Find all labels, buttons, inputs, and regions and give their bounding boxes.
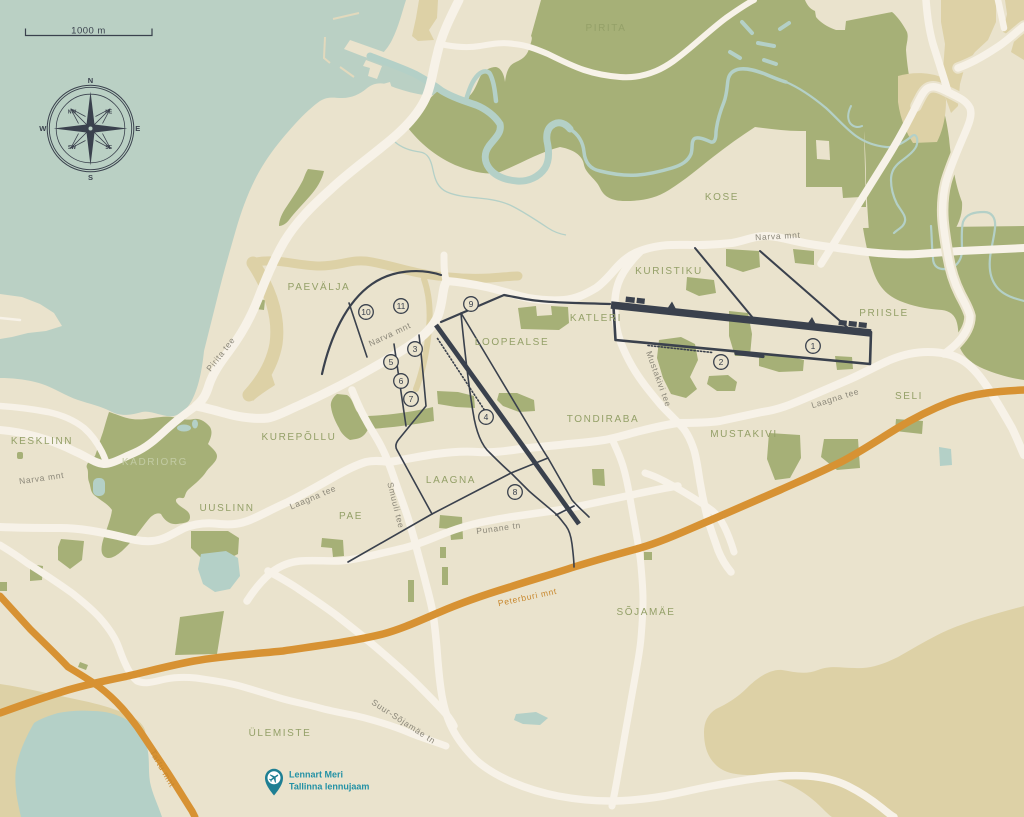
svg-text:NW: NW bbox=[68, 109, 77, 115]
svg-text:E: E bbox=[135, 124, 140, 133]
svg-text:KESKLINN: KESKLINN bbox=[11, 436, 73, 447]
svg-text:1: 1 bbox=[811, 341, 816, 351]
svg-text:KOSE: KOSE bbox=[705, 192, 739, 203]
svg-text:6: 6 bbox=[399, 376, 404, 386]
svg-text:PAEVÄLJA: PAEVÄLJA bbox=[288, 281, 351, 293]
svg-text:2: 2 bbox=[719, 357, 724, 367]
svg-text:PIRITA: PIRITA bbox=[585, 23, 626, 34]
svg-text:SE: SE bbox=[105, 145, 112, 151]
svg-text:N: N bbox=[88, 76, 93, 85]
svg-text:3: 3 bbox=[413, 344, 418, 354]
svg-text:NE: NE bbox=[105, 109, 113, 115]
svg-text:S: S bbox=[88, 173, 93, 182]
svg-text:LAAGNA: LAAGNA bbox=[426, 475, 476, 486]
svg-text:1000 m: 1000 m bbox=[71, 26, 106, 37]
svg-text:W: W bbox=[39, 124, 47, 133]
svg-text:PAE: PAE bbox=[339, 511, 363, 522]
svg-text:11: 11 bbox=[397, 301, 406, 311]
svg-text:5: 5 bbox=[389, 357, 394, 367]
svg-text:KURISTIKU: KURISTIKU bbox=[635, 266, 703, 277]
svg-text:SÕJAMÄE: SÕJAMÄE bbox=[617, 605, 676, 618]
svg-text:10: 10 bbox=[361, 307, 371, 317]
svg-text:PRIISLE: PRIISLE bbox=[859, 308, 909, 319]
svg-text:LOOPEALSE: LOOPEALSE bbox=[475, 337, 549, 348]
svg-text:KATLERI: KATLERI bbox=[570, 313, 622, 324]
svg-text:SW: SW bbox=[68, 145, 76, 151]
svg-text:UUSLINN: UUSLINN bbox=[199, 503, 254, 514]
svg-text:TONDIRABA: TONDIRABA bbox=[567, 414, 640, 425]
svg-text:4: 4 bbox=[484, 412, 489, 422]
svg-text:Tallinna lennujaam: Tallinna lennujaam bbox=[289, 782, 369, 792]
svg-text:KADRIORG: KADRIORG bbox=[122, 457, 188, 468]
svg-text:MUSTAKIVI: MUSTAKIVI bbox=[710, 429, 778, 440]
svg-text:KUREPÕLLU: KUREPÕLLU bbox=[262, 430, 337, 443]
svg-text:ÜLEMISTE: ÜLEMISTE bbox=[249, 727, 312, 739]
svg-text:SELI: SELI bbox=[895, 391, 923, 402]
svg-text:Lennart Meri: Lennart Meri bbox=[289, 770, 343, 780]
svg-text:7: 7 bbox=[409, 394, 414, 404]
svg-text:9: 9 bbox=[469, 299, 474, 309]
svg-text:8: 8 bbox=[513, 487, 518, 497]
